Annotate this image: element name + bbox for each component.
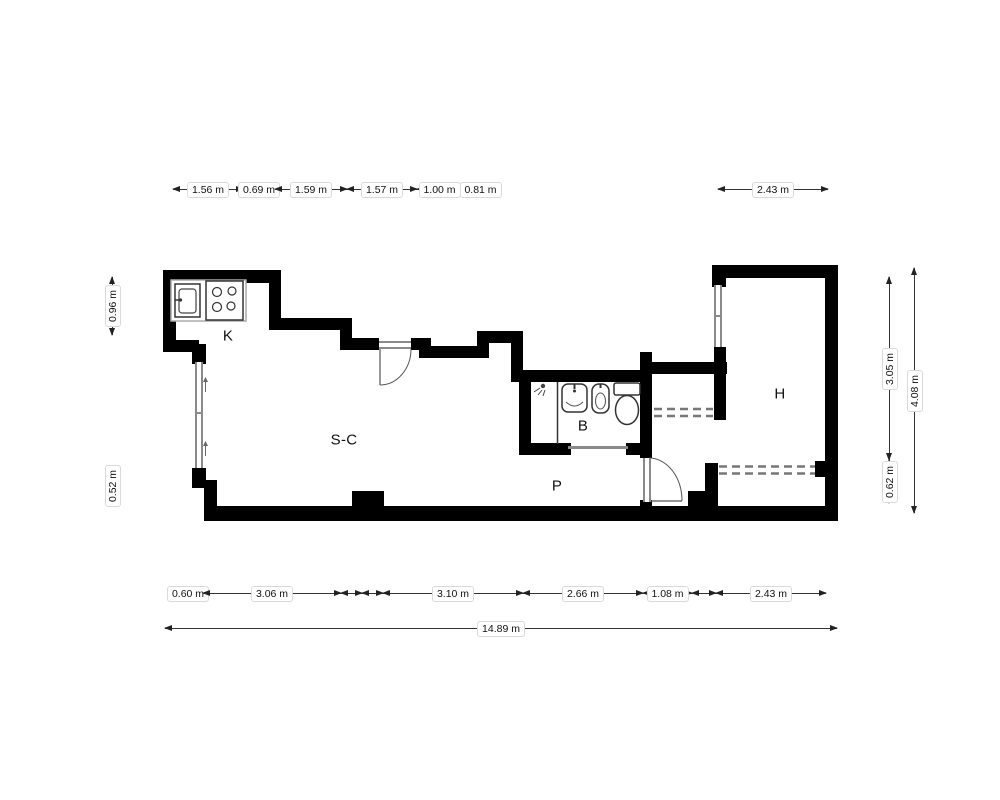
wall-wardrobe-side <box>815 461 825 477</box>
kitchen-counter <box>171 280 246 321</box>
dim-right-2: 0.62 m <box>889 460 890 503</box>
dim-bottom-1: 0.60 m <box>173 593 203 594</box>
dim-bottom-gap <box>341 593 362 594</box>
column <box>352 491 384 507</box>
dim-top-5: 1.00 m <box>417 189 462 190</box>
dim-top-1: 1.56 m <box>173 189 243 190</box>
entry-door-opening <box>379 341 411 349</box>
dim-top-2: 0.69 m <box>243 189 275 190</box>
window-mullion <box>195 412 203 414</box>
dim-top-6: 0.81 m <box>462 189 499 190</box>
room-label-kitchen: K <box>223 328 233 345</box>
wall <box>477 331 489 358</box>
dim-right-1: 3.05 m <box>889 277 890 460</box>
dim-bottom-2: 3.06 m <box>203 593 341 594</box>
sink-icon <box>175 284 200 317</box>
wall <box>192 344 206 364</box>
wall-wardrobe-side <box>705 463 718 521</box>
wall-bathroom-right <box>640 352 652 458</box>
dim-right-3: 4.08 m <box>914 268 915 513</box>
dim-bottom-3: 3.10 m <box>383 593 523 594</box>
stove-icon <box>206 281 243 320</box>
fixtures-layer <box>0 0 1000 800</box>
window-mullion <box>714 315 722 317</box>
dim-bottom-gap <box>692 593 716 594</box>
floor-plan-canvas: K S-C B P H 1.56 m 0.69 m 1.59 m 1.57 m … <box>0 0 1000 800</box>
column <box>688 491 706 507</box>
wall <box>204 480 217 507</box>
bathroom-sliding-door <box>568 446 628 449</box>
window-slide-arrows <box>203 377 208 456</box>
dim-top-7: 2.43 m <box>718 189 828 190</box>
dim-left-2: 0.52 m <box>112 470 113 501</box>
window-living <box>195 362 203 468</box>
dim-bottom-4: 2.66 m <box>523 593 643 594</box>
dim-top-4: 1.57 m <box>347 189 417 190</box>
dim-total-width: 14.89 m <box>165 628 837 629</box>
wall-right-exterior <box>825 265 838 521</box>
dim-left-1: 0.96 m <box>112 277 113 335</box>
wall <box>269 318 352 330</box>
wall <box>340 338 379 350</box>
toilet-icon <box>614 383 640 425</box>
dim-bottom-gap <box>362 593 383 594</box>
room-label-bedroom: H <box>774 386 785 403</box>
shower-icon <box>534 384 545 396</box>
door-swing-entry <box>380 349 411 385</box>
room-label-bathroom: B <box>578 418 588 435</box>
wall-bedroom-left <box>714 347 726 420</box>
dim-bottom-6: 2.43 m <box>716 593 826 594</box>
room-label-living: S-C <box>331 432 358 449</box>
dim-top-3: 1.59 m <box>275 189 347 190</box>
washbasin-icon <box>562 384 587 412</box>
wall-bedroom-top <box>712 265 838 278</box>
wall-bottom-exterior <box>204 506 838 521</box>
room-label-hall: P <box>552 478 562 495</box>
wall-bathroom-top <box>511 370 652 382</box>
door-swing-bedroom <box>649 458 682 501</box>
wardrobe-dashed-front <box>654 409 815 474</box>
wall <box>163 270 281 283</box>
bidet-icon <box>592 384 609 413</box>
bedroom-door-opening <box>643 458 651 502</box>
dim-bottom-5: 1.08 m <box>643 593 692 594</box>
wall-bathroom-bottom <box>519 443 571 455</box>
